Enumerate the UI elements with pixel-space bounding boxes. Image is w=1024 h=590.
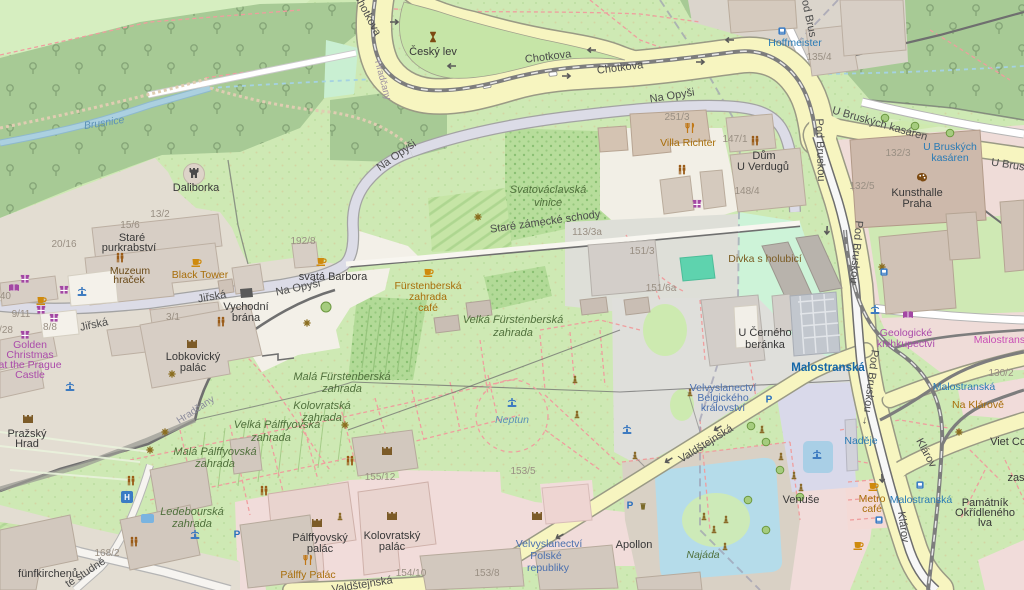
svg-text:15/6: 15/6 [120, 220, 140, 231]
svg-text:168/2: 168/2 [94, 548, 119, 559]
svg-text:Neptun: Neptun [495, 414, 529, 426]
svg-text:palác: palác [379, 541, 406, 553]
svg-text:purkrabství: purkrabství [102, 242, 156, 254]
svg-text:Na Klárově: Na Klárově [952, 399, 1004, 411]
svg-text:Divka s holubicí: Divka s holubicí [728, 253, 802, 265]
svg-text:Pálffy Palác: Pálffy Palác [280, 569, 335, 581]
svg-text:/40: /40 [0, 291, 11, 302]
svg-text:153/5: 153/5 [510, 466, 535, 477]
svg-text:Castle: Castle [15, 369, 45, 381]
svg-text:zahrada: zahrada [250, 432, 291, 444]
svg-text:vinice: vinice [534, 197, 562, 209]
svg-text:café: café [418, 302, 438, 314]
svg-text:113/3a: 113/3a [572, 227, 602, 238]
svg-text:251/3: 251/3 [664, 112, 689, 123]
svg-text:Malá Fürstenberská: Malá Fürstenberská [293, 371, 390, 383]
svg-text:Malá Pálffyovská: Malá Pálffyovská [173, 446, 256, 458]
svg-text:H: H [124, 493, 130, 502]
svg-text:Black Tower: Black Tower [172, 269, 229, 281]
svg-text:Velká Fürstenberská: Velká Fürstenberská [463, 314, 563, 326]
svg-text:Naděje: Naděje [844, 435, 877, 447]
svg-text:fünfkirchenů: fünfkirchenů [18, 568, 78, 580]
svg-text:zas: zas [1007, 472, 1024, 484]
svg-text:20/16: 20/16 [51, 239, 76, 250]
svg-text:Viet Co: Viet Co [990, 436, 1024, 448]
svg-text:Hoffmeister: Hoffmeister [768, 37, 822, 49]
svg-text:148/4: 148/4 [734, 186, 759, 197]
svg-text:království: království [701, 402, 745, 414]
svg-text:knihkupectví: knihkupectví [877, 338, 935, 350]
svg-text:Velká Pálffyovská: Velká Pálffyovská [234, 419, 320, 431]
svg-text:Kolovratská: Kolovratská [293, 400, 350, 412]
svg-text:kasáren: kasáren [931, 152, 969, 164]
svg-text:palác: palác [307, 543, 334, 555]
svg-text:Praha: Praha [902, 198, 932, 210]
svg-text:155/12: 155/12 [365, 472, 396, 483]
svg-text:Najáda: Najáda [686, 549, 719, 561]
svg-text:153/8: 153/8 [474, 568, 499, 579]
svg-text:Svatováclavská: Svatováclavská [510, 184, 586, 196]
svg-text:zahrada: zahrada [171, 518, 212, 530]
svg-text:zahrada: zahrada [194, 458, 235, 470]
svg-text:135/4: 135/4 [806, 52, 831, 63]
svg-text:151/3: 151/3 [629, 246, 654, 257]
svg-text:republiky: republiky [527, 562, 570, 574]
svg-text:132/3: 132/3 [885, 148, 910, 159]
svg-text:Apollon: Apollon [616, 539, 653, 551]
svg-text:palác: palác [180, 362, 207, 374]
svg-text:Ledebourská: Ledebourská [160, 506, 224, 518]
svg-text:154/10: 154/10 [396, 568, 427, 579]
svg-text:hraček: hraček [113, 274, 145, 286]
svg-text:Pod Bruskou: Pod Bruskou [813, 118, 827, 181]
svg-text:9/11: 9/11 [12, 309, 31, 320]
svg-text:Velvyslanectví: Velvyslanectví [516, 538, 583, 550]
svg-text:Venuše: Venuše [783, 494, 820, 506]
svg-text:147/1: 147/1 [722, 134, 747, 145]
svg-text:132/5: 132/5 [849, 181, 874, 192]
svg-text:192/8: 192/8 [290, 236, 315, 247]
svg-text:Malostranská: Malostranská [933, 381, 996, 393]
svg-text:Malostranská: Malostranská [974, 334, 1024, 346]
svg-text:Hrad: Hrad [15, 438, 39, 450]
svg-text:3/1: 3/1 [166, 312, 180, 323]
svg-text:/28: /28 [0, 325, 13, 336]
svg-text:Daliborka: Daliborka [173, 182, 220, 194]
svg-text:151/6a: 151/6a [646, 283, 677, 294]
svg-text:Villa Richter: Villa Richter [660, 137, 716, 149]
svg-text:Malostranská: Malostranská [890, 494, 953, 506]
svg-text:zahrada: zahrada [492, 327, 533, 339]
svg-text:U Černého: U Černého [738, 326, 791, 339]
svg-text:U Verdugů: U Verdugů [737, 161, 789, 173]
svg-text:beránka: beránka [745, 339, 786, 351]
svg-text:café: café [862, 503, 882, 515]
svg-text:8/8: 8/8 [43, 322, 57, 333]
svg-text:zahrada: zahrada [321, 383, 362, 395]
svg-text:svatá Barbora: svatá Barbora [299, 271, 368, 283]
svg-text:130/2: 130/2 [988, 368, 1013, 379]
svg-text:lva: lva [978, 517, 993, 529]
svg-text:brána: brána [232, 312, 261, 324]
svg-text:Malostranská: Malostranská [791, 362, 865, 374]
svg-text:Polské: Polské [530, 550, 562, 562]
svg-text:13/2: 13/2 [150, 209, 170, 220]
svg-text:Český lev: Český lev [409, 45, 457, 58]
